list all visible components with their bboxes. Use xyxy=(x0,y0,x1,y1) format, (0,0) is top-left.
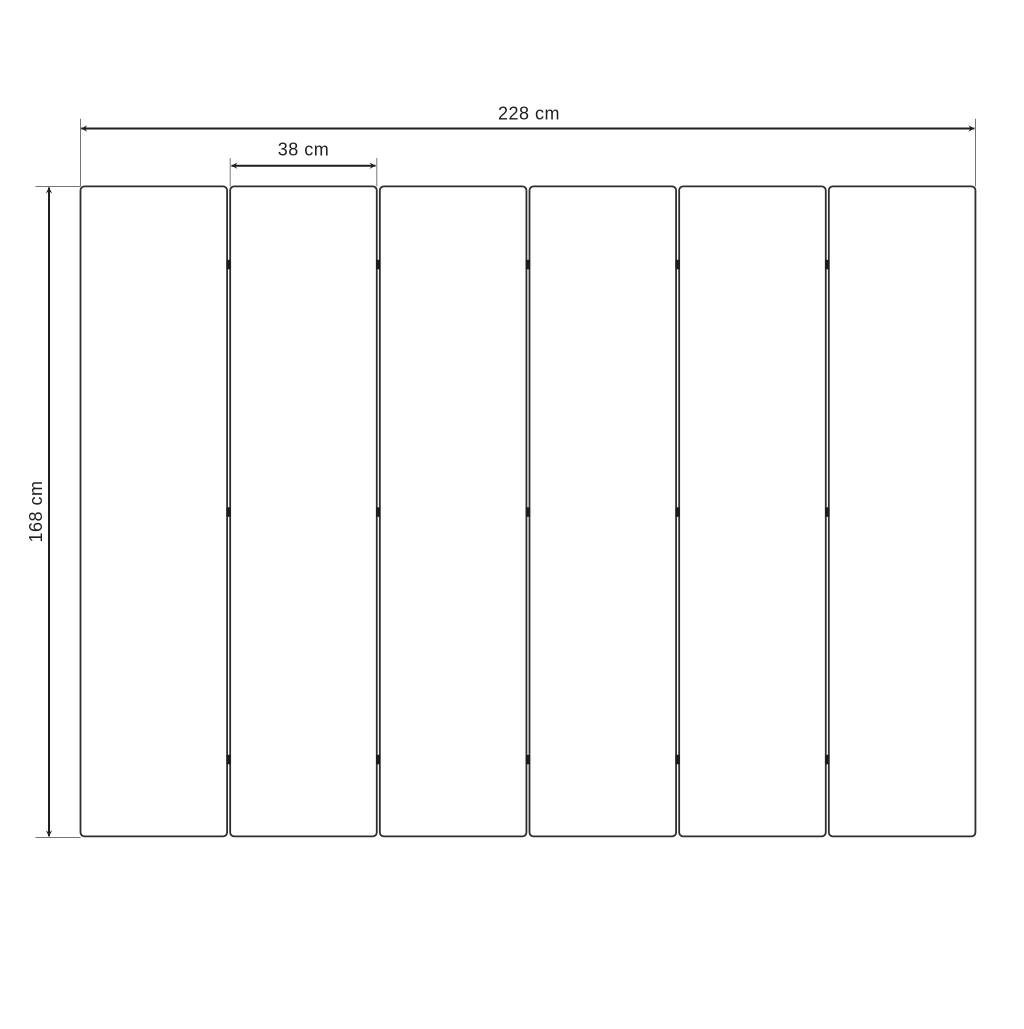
svg-text:228 cm: 228 cm xyxy=(498,104,560,124)
svg-text:38 cm: 38 cm xyxy=(278,140,330,160)
svg-text:168 cm: 168 cm xyxy=(26,480,46,542)
